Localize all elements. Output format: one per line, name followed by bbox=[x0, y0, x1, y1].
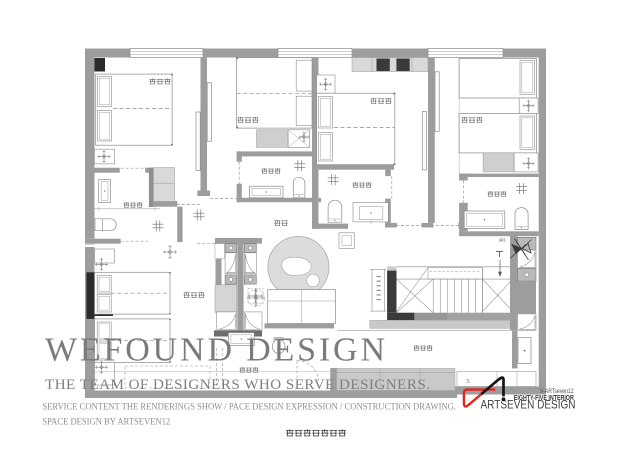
svg-text:SPACE DESIGN BY ARTSEVEN12: SPACE DESIGN BY ARTSEVEN12 bbox=[42, 418, 170, 428]
svg-text:THE TEAM OF DESIGNERS WHO SERV: THE TEAM OF DESIGNERS WHO SERVE DESIGNER… bbox=[45, 377, 430, 393]
svg-text:3.: 3. bbox=[466, 379, 471, 385]
svg-text:SERVICE CONTENT THE RENDERINGS: SERVICE CONTENT THE RENDERINGS SHOW / PA… bbox=[42, 402, 456, 412]
svg-text:WEFOUND DESIGN: WEFOUND DESIGN bbox=[45, 331, 385, 368]
svg-text:ARTSEVEN DESIGN: ARTSEVEN DESIGN bbox=[481, 398, 576, 412]
svg-text:ART.: ART. bbox=[499, 239, 507, 243]
